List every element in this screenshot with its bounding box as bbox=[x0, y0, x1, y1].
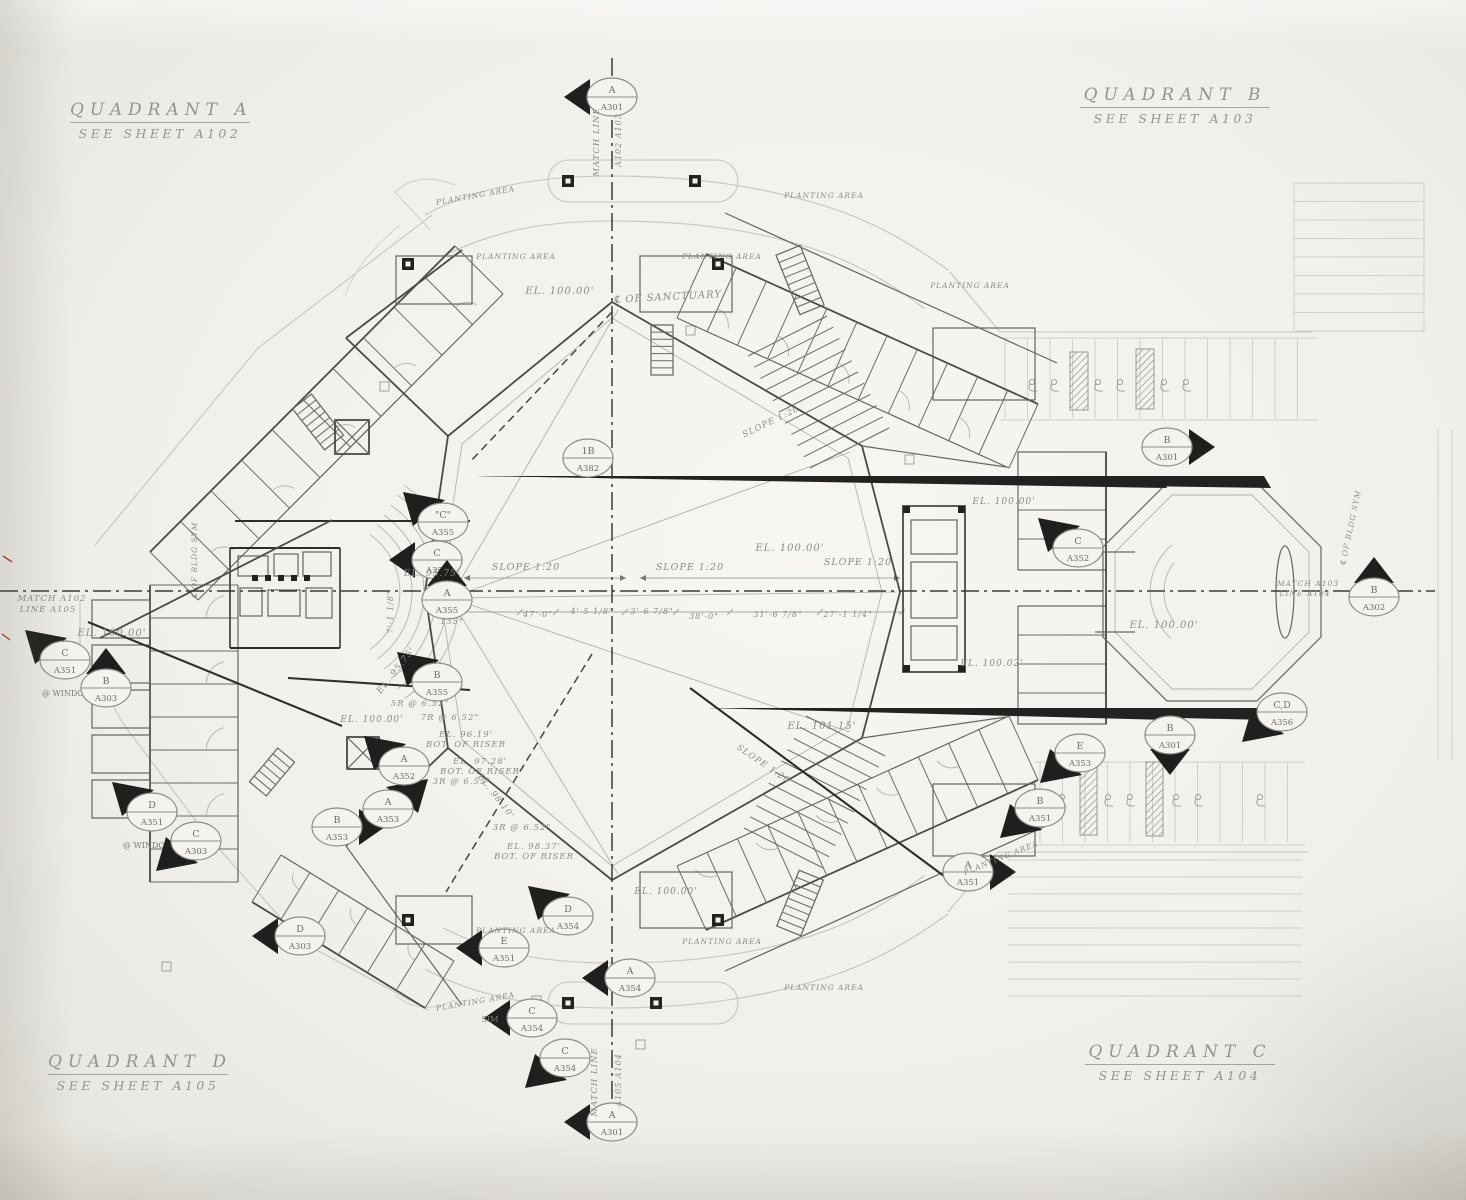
wheelchair-icon bbox=[1257, 799, 1265, 806]
wheelchair-icon bbox=[1173, 794, 1178, 799]
callout-bubble: BA301 bbox=[1142, 428, 1215, 466]
callout-letter: B bbox=[1371, 585, 1378, 596]
platform-post bbox=[958, 506, 965, 513]
callout-sheet: A302 bbox=[1362, 603, 1385, 613]
callout-bubble: BA302 bbox=[1349, 557, 1399, 616]
plan-label: ℄ OF BLDG SYM bbox=[1338, 489, 1363, 566]
stage-fixture bbox=[303, 552, 331, 576]
column-square-core bbox=[406, 918, 411, 923]
plan-geometry bbox=[315, 423, 334, 438]
room-divider bbox=[768, 825, 797, 889]
platform-post bbox=[903, 665, 910, 672]
room-divider bbox=[181, 521, 229, 569]
room-divider bbox=[949, 743, 978, 807]
floor-plan-drawing: AA301CA351@ WINDOWBA303DA351@ WINDOWCA30… bbox=[0, 0, 1466, 1200]
column-square-core bbox=[566, 179, 571, 184]
section-line bbox=[100, 520, 332, 638]
plan-label: MATCH LINE bbox=[592, 107, 602, 177]
wheelchair-icon bbox=[1173, 799, 1181, 806]
plan-label: ℄ OF BLDG SYM bbox=[190, 522, 199, 599]
room-divider bbox=[425, 277, 473, 325]
room-divider bbox=[367, 926, 396, 973]
wheelchair-icon bbox=[1051, 379, 1056, 384]
plan-label: PLANTING AREA bbox=[681, 937, 762, 946]
callout-letter: A bbox=[443, 588, 451, 599]
stage-fixture bbox=[268, 590, 300, 616]
arrowhead bbox=[464, 575, 470, 581]
callout-letter: D bbox=[564, 904, 572, 915]
callout-letter: C bbox=[433, 548, 440, 559]
callout-letter: B bbox=[334, 815, 341, 826]
room-divider bbox=[737, 281, 766, 345]
callout-sheet: A301 bbox=[1158, 741, 1181, 751]
wing-inner-wall bbox=[677, 716, 1009, 866]
plan-label: SLOPE 1:20 bbox=[741, 404, 801, 440]
sanctuary-floor-outline bbox=[440, 318, 882, 866]
callout-letter: C,D bbox=[1273, 700, 1291, 711]
wheelchair-icon bbox=[1095, 379, 1100, 384]
plan-label: PLANTING AREA bbox=[783, 983, 864, 992]
quadrant-d-name: QUADRANT D bbox=[48, 1052, 228, 1072]
room-divider bbox=[394, 307, 442, 355]
platform-post bbox=[903, 506, 910, 513]
plan-label: LINE A104 bbox=[1278, 589, 1330, 598]
callout-note: SIM bbox=[482, 1015, 499, 1024]
wheelchair-icon bbox=[1117, 379, 1122, 384]
site-edge-nw bbox=[95, 215, 432, 545]
plan-label: 7'-1 1/8" bbox=[386, 590, 395, 633]
callout-sheet: A352 bbox=[392, 772, 415, 782]
wheelchair-icon bbox=[1127, 799, 1135, 806]
stage-post bbox=[304, 575, 310, 581]
quadrant-d-sheet: SEE SHEET A105 bbox=[48, 1078, 228, 1093]
callout-flag bbox=[564, 1104, 590, 1140]
column-square-core bbox=[566, 1001, 571, 1006]
plan-label: EL. 100.00' bbox=[633, 887, 697, 897]
room-divider bbox=[737, 839, 766, 903]
wheelchair-icon bbox=[1029, 379, 1034, 384]
red-mark bbox=[2, 634, 10, 640]
plan-label: SLOPE 1:20 bbox=[824, 557, 892, 568]
arrowhead bbox=[640, 575, 646, 581]
blueprint-scan: AA301CA351@ WINDOWBA303DA351@ WINDOWCA30… bbox=[0, 0, 1466, 1200]
wheelchair-icon bbox=[1257, 794, 1262, 799]
callout-bubble: CA352 bbox=[1038, 518, 1103, 567]
room-divider bbox=[1009, 716, 1038, 780]
quadrant-b-rule bbox=[1080, 107, 1270, 108]
callout-sheet: A355 bbox=[431, 528, 454, 538]
callout-sheet: A355 bbox=[435, 606, 458, 616]
room-divider bbox=[949, 377, 978, 441]
callout-letter: "C" bbox=[435, 510, 451, 521]
callout-letter: A bbox=[608, 85, 616, 96]
stair-run bbox=[651, 325, 673, 375]
plan-label: EL. 100.00' bbox=[524, 286, 594, 297]
callout-bubble: BA351 bbox=[1000, 789, 1065, 838]
plan-label: PLANTING AREA bbox=[681, 252, 762, 261]
callout-letter: C bbox=[61, 648, 68, 659]
callout-letter: E bbox=[501, 936, 508, 947]
wheelchair-icon bbox=[1051, 384, 1059, 391]
wing-outer-wall bbox=[706, 780, 1038, 930]
wheelchair-icon bbox=[1195, 799, 1203, 806]
callout-sheet: A301 bbox=[600, 1128, 623, 1138]
plan-label: MATCH A103 bbox=[1276, 579, 1339, 588]
plan-label: EL. 100.00' bbox=[76, 628, 146, 639]
door-swing bbox=[394, 363, 416, 368]
stage-post bbox=[291, 575, 297, 581]
door-swing bbox=[778, 336, 789, 356]
door-swing bbox=[696, 870, 718, 877]
room-divider bbox=[396, 943, 425, 990]
wheelchair-icon bbox=[1105, 799, 1113, 806]
quadrant-d-rule bbox=[48, 1074, 228, 1075]
room-divider bbox=[1009, 404, 1038, 468]
plan-label: 47'-0" bbox=[522, 610, 553, 619]
callout-sheet: A351 bbox=[53, 666, 76, 676]
wheelchair-icon bbox=[1183, 384, 1191, 391]
callout-sheet: A303 bbox=[288, 942, 311, 952]
quadrant-d-label: QUADRANT D SEE SHEET A105 bbox=[48, 1052, 228, 1093]
door-swing bbox=[937, 761, 959, 768]
callout-letter: A bbox=[608, 1110, 616, 1121]
callout-flag bbox=[564, 79, 590, 115]
plan-geometry bbox=[788, 275, 812, 285]
callout-bubble: DA303 bbox=[252, 917, 325, 955]
callout-sheet: A301 bbox=[600, 103, 623, 113]
plan-label: PLANTING AREA bbox=[783, 191, 864, 200]
stage-fixture bbox=[274, 554, 298, 576]
callout-letter: B bbox=[1037, 796, 1044, 807]
seating-arc bbox=[370, 535, 400, 650]
door-swing bbox=[408, 943, 415, 960]
plan-label: 31'-6 7/8" bbox=[753, 610, 802, 619]
room-divider bbox=[333, 368, 381, 416]
plan-label: SLOPE 1:20 bbox=[656, 562, 724, 573]
door-swing bbox=[206, 662, 224, 684]
callout-sheet: A354 bbox=[520, 1024, 543, 1034]
keynote-box bbox=[636, 1040, 645, 1049]
plan-label: EL. 101.15' bbox=[786, 721, 856, 732]
plan-label: EL. 100.00' bbox=[339, 715, 403, 725]
plan-geometry bbox=[796, 877, 820, 887]
plan-geometry bbox=[911, 562, 957, 618]
room-divider bbox=[677, 254, 706, 318]
heavy-lines-layer bbox=[0, 58, 1435, 1140]
plan-label: EL. 100.02' bbox=[959, 659, 1023, 669]
stage-post bbox=[265, 575, 271, 581]
quadrant-c-sheet: SEE SHEET A104 bbox=[1085, 1068, 1275, 1083]
stage-post bbox=[252, 575, 258, 581]
callout-flag bbox=[582, 960, 608, 996]
plan-label: EL. 100.00' bbox=[1128, 620, 1198, 631]
room-divider bbox=[828, 322, 857, 386]
callout-sheet: A354 bbox=[556, 922, 579, 932]
callout-sheet: A353 bbox=[376, 815, 399, 825]
callout-bubble: CA354 bbox=[525, 1039, 590, 1088]
plan-label: PLANTING AREA bbox=[475, 926, 556, 935]
callout-sheet: A351 bbox=[956, 878, 979, 888]
keynote-box bbox=[162, 962, 171, 971]
plan-label: EL. 98.10' bbox=[474, 772, 516, 821]
plan-label: A102 A103 bbox=[614, 113, 623, 168]
callout-letter: C bbox=[1074, 536, 1081, 547]
plan-label: 7R @ 6.52" bbox=[421, 713, 480, 723]
quadrant-b-sheet: SEE SHEET A103 bbox=[1080, 111, 1270, 126]
plan-label: EL. 97.28' bbox=[452, 757, 507, 767]
plan-label: BOT. OF RISER bbox=[493, 852, 574, 862]
plan-geometry bbox=[797, 297, 821, 307]
callout-bubble: CA354SIM bbox=[482, 999, 557, 1037]
plan-geometry bbox=[911, 520, 957, 554]
callout-letter: C bbox=[192, 829, 199, 840]
quadrant-c-name: QUADRANT C bbox=[1085, 1042, 1275, 1062]
callout-sheet: A354 bbox=[553, 1064, 576, 1074]
door-wedge bbox=[708, 708, 1271, 720]
door-swing bbox=[838, 363, 849, 383]
callout-sheet: A303 bbox=[184, 847, 207, 857]
callout-bubble: AA353 bbox=[363, 779, 428, 828]
column-square-core bbox=[716, 262, 721, 267]
callout-sheet: A303 bbox=[94, 694, 117, 704]
plan-label: LINE A105 bbox=[19, 605, 77, 615]
room-divider bbox=[242, 460, 290, 508]
room-divider bbox=[252, 855, 281, 902]
wheelchair-icon bbox=[1183, 379, 1188, 384]
door-swing bbox=[206, 794, 224, 816]
callout-letter: B bbox=[103, 676, 110, 687]
door-swing bbox=[877, 788, 899, 795]
plan-label: EL. 98.37' bbox=[506, 842, 561, 852]
plan-geometry bbox=[791, 283, 815, 293]
plan-label: 3R @ 6.52" bbox=[493, 823, 552, 833]
door-swing bbox=[959, 418, 970, 438]
callout-letter: A bbox=[626, 966, 634, 977]
plan-label: 5R @ 6.52" bbox=[391, 699, 450, 709]
plan-geometry bbox=[782, 912, 806, 922]
plan-geometry bbox=[311, 418, 330, 433]
door-swing bbox=[206, 728, 224, 750]
callout-sheet: A353 bbox=[325, 833, 348, 843]
parking-island-hatch bbox=[1136, 349, 1154, 409]
quadrant-a-name: QUADRANT A bbox=[70, 100, 250, 120]
callout-letter: 1B bbox=[581, 446, 594, 457]
plan-geometry bbox=[782, 260, 806, 270]
door-swing bbox=[350, 908, 357, 925]
parking-island-hatch bbox=[1080, 765, 1097, 835]
plan-label: EL. 100.00' bbox=[754, 543, 824, 554]
callout-sheet: A301 bbox=[1155, 453, 1178, 463]
quadrant-c-label: QUADRANT C SEE SHEET A104 bbox=[1085, 1042, 1275, 1083]
plan-geometry bbox=[785, 268, 809, 278]
callout-letter: C bbox=[528, 1006, 535, 1017]
room-divider bbox=[339, 908, 368, 955]
quadrant-a-label: QUADRANT A SEE SHEET A102 bbox=[70, 100, 250, 141]
plan-label: 135° bbox=[440, 617, 463, 626]
callout-flag bbox=[252, 918, 278, 954]
room-divider bbox=[888, 771, 917, 835]
quadrant-b-name: QUADRANT B bbox=[1080, 85, 1270, 105]
connector-room bbox=[1018, 606, 1106, 724]
room-divider bbox=[888, 349, 917, 413]
keynote-box bbox=[905, 455, 914, 464]
plan-label: MATCH LINE bbox=[590, 1047, 600, 1117]
column-square-core bbox=[406, 262, 411, 267]
room-divider bbox=[211, 491, 259, 539]
callout-letter: B bbox=[1164, 435, 1171, 446]
plan-geometry bbox=[779, 253, 803, 263]
wing-outer-wall bbox=[706, 254, 1038, 404]
arrowhead bbox=[620, 575, 626, 581]
callout-bubble: AA352 bbox=[364, 736, 429, 785]
quadrant-a-sheet: SEE SHEET A102 bbox=[70, 126, 250, 141]
callout-letter: C bbox=[561, 1046, 568, 1057]
fan-line bbox=[450, 452, 850, 598]
door-swing bbox=[272, 486, 294, 491]
callout-flag bbox=[1189, 429, 1215, 465]
plan-label: 4'-5 1/8" bbox=[569, 607, 613, 616]
column-square-core bbox=[654, 1001, 659, 1006]
callout-sheet: A353 bbox=[1068, 759, 1091, 769]
plan-geometry bbox=[788, 898, 812, 908]
callout-letter: D bbox=[296, 924, 304, 935]
plan-label: 38'-0" bbox=[689, 612, 719, 621]
callout-letter: A bbox=[400, 754, 408, 765]
callout-sheet: A382 bbox=[576, 464, 599, 474]
red-mark bbox=[3, 556, 12, 562]
plan-label: MATCH A102 bbox=[16, 594, 86, 604]
room-bump-west bbox=[92, 735, 150, 773]
callout-bubble: AA354 bbox=[582, 959, 655, 997]
wheelchair-icon bbox=[1095, 384, 1103, 391]
callout-bubble: 1BA382 bbox=[563, 439, 613, 477]
plan-label: EL. 95.75' bbox=[403, 569, 461, 579]
wheelchair-icon bbox=[1117, 384, 1125, 391]
plan-geometry bbox=[346, 338, 448, 436]
plan-label: SLOPE 1:20 bbox=[492, 562, 560, 573]
plan-label: ℄ OF SANCTUARY bbox=[614, 289, 723, 306]
callout-sheet: A355 bbox=[425, 688, 448, 698]
callout-bubble: CA303 bbox=[156, 822, 221, 871]
callout-bubble: "C"A355 bbox=[403, 492, 468, 541]
plan-label: A105 A104 bbox=[614, 1053, 623, 1108]
quadrant-c-rule bbox=[1085, 1064, 1275, 1065]
door-swing bbox=[455, 302, 477, 307]
column-square-core bbox=[716, 918, 721, 923]
walkway-island-top bbox=[548, 160, 738, 202]
callout-bubble: C,DA356 bbox=[1242, 693, 1307, 742]
stage-fixture bbox=[306, 588, 332, 618]
plan-geometry bbox=[911, 626, 957, 660]
stage-fixture bbox=[240, 588, 262, 616]
plan-label: PLANTING AREA bbox=[434, 184, 515, 207]
quadrant-b-label: QUADRANT B SEE SHEET A103 bbox=[1080, 85, 1270, 126]
door-swing bbox=[206, 596, 224, 618]
fan-line bbox=[450, 592, 896, 598]
callout-sheet: A351 bbox=[492, 954, 515, 964]
room-divider bbox=[281, 873, 310, 920]
plan-label: PLANTING AREA bbox=[929, 281, 1010, 290]
wheelchair-icon bbox=[1029, 384, 1037, 391]
callout-letter: E bbox=[1077, 741, 1084, 752]
room-divider bbox=[768, 295, 797, 359]
keynote-box bbox=[686, 326, 695, 335]
plan-label: 3'-6 7/8" bbox=[630, 607, 673, 616]
plan-label: EL. 96.19' bbox=[438, 730, 493, 740]
room-divider bbox=[677, 866, 706, 930]
callout-letter: D bbox=[148, 800, 156, 811]
callout-letter: A bbox=[384, 797, 392, 808]
callout-sheet: A352 bbox=[1066, 554, 1089, 564]
plan-label: EL. 100.00' bbox=[971, 497, 1035, 507]
platform bbox=[903, 506, 965, 672]
plan-geometry bbox=[320, 429, 339, 444]
plan-geometry bbox=[780, 919, 804, 929]
room-divider bbox=[303, 399, 351, 447]
callout-letter: B bbox=[434, 670, 441, 681]
callout-sheet: A354 bbox=[618, 984, 641, 994]
wing-inner-wall bbox=[677, 318, 1009, 468]
site-walkways-layer bbox=[80, 160, 1452, 1024]
column-square-core bbox=[693, 179, 698, 184]
door-swing bbox=[293, 873, 300, 890]
parking-island-hatch bbox=[1070, 352, 1088, 410]
keynote-box bbox=[380, 382, 389, 391]
room-divider bbox=[858, 336, 887, 400]
plan-label: PLANTING AREA bbox=[475, 252, 556, 261]
callout-bubble: AA301 bbox=[564, 1103, 637, 1141]
callout-sheet: A351 bbox=[1028, 814, 1051, 824]
callout-sheet: A356 bbox=[1270, 718, 1293, 728]
plan-label: 27'-1 1/4" bbox=[822, 610, 872, 619]
stage-post bbox=[278, 575, 284, 581]
callout-sheet: A351 bbox=[140, 818, 163, 828]
quadrant-a-rule bbox=[70, 122, 250, 123]
door-swing bbox=[899, 390, 910, 410]
stair-run bbox=[249, 748, 294, 796]
parking-island-hatch bbox=[1146, 762, 1163, 836]
room-divider bbox=[272, 430, 320, 478]
plan-geometry bbox=[791, 891, 815, 901]
callout-letter: B bbox=[1167, 723, 1174, 734]
plan-label: BOT. OF RISER bbox=[425, 740, 506, 750]
plan-geometry bbox=[785, 905, 809, 915]
